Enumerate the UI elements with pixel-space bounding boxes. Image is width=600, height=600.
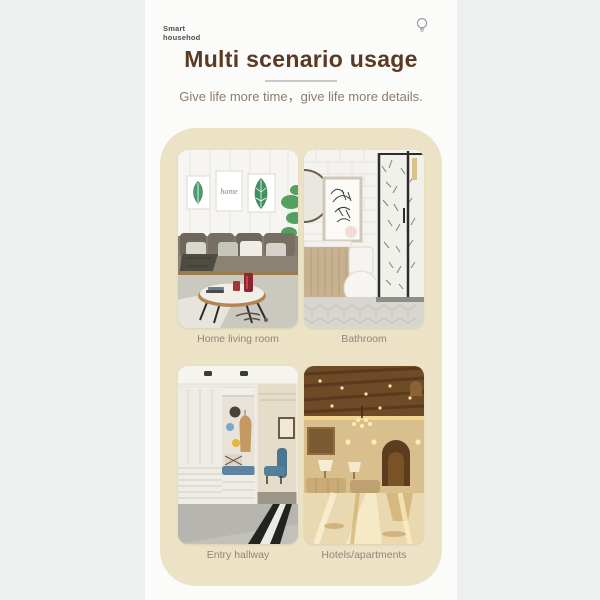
page-subtitle: Give life more time，give life more detai…	[145, 86, 457, 105]
lightbulb-icon	[415, 17, 429, 35]
scenario-tile-living-room: home	[178, 150, 298, 345]
hotel-lobby-photo	[304, 366, 424, 544]
brand-label: Smart househod	[163, 24, 200, 42]
entry-hallway-photo	[178, 366, 298, 544]
scenario-label: Bathroom	[304, 333, 424, 345]
scenario-label: Hotels/apartments	[304, 549, 424, 561]
brand-line-2: househod	[163, 33, 200, 42]
content-panel: Smart househod Multi scenario usage Give…	[145, 0, 457, 600]
scenario-tile-entry-hallway: Entry hallway	[178, 366, 298, 561]
page: Smart househod Multi scenario usage Give…	[0, 0, 600, 600]
frame-art-text: home	[220, 187, 238, 196]
scenario-label: Entry hallway	[178, 549, 298, 561]
page-title: Multi scenario usage	[145, 46, 457, 73]
bathroom-photo	[304, 150, 424, 328]
scenario-label: Home living room	[178, 333, 298, 345]
scenario-card: home	[160, 128, 442, 586]
scenario-tile-hotel: Hotels/apartments	[304, 366, 424, 561]
title-divider	[265, 80, 337, 82]
living-room-photo: home	[178, 150, 298, 328]
brand-line-1: Smart	[163, 24, 200, 33]
scenario-tile-bathroom: Bathroom	[304, 150, 424, 345]
